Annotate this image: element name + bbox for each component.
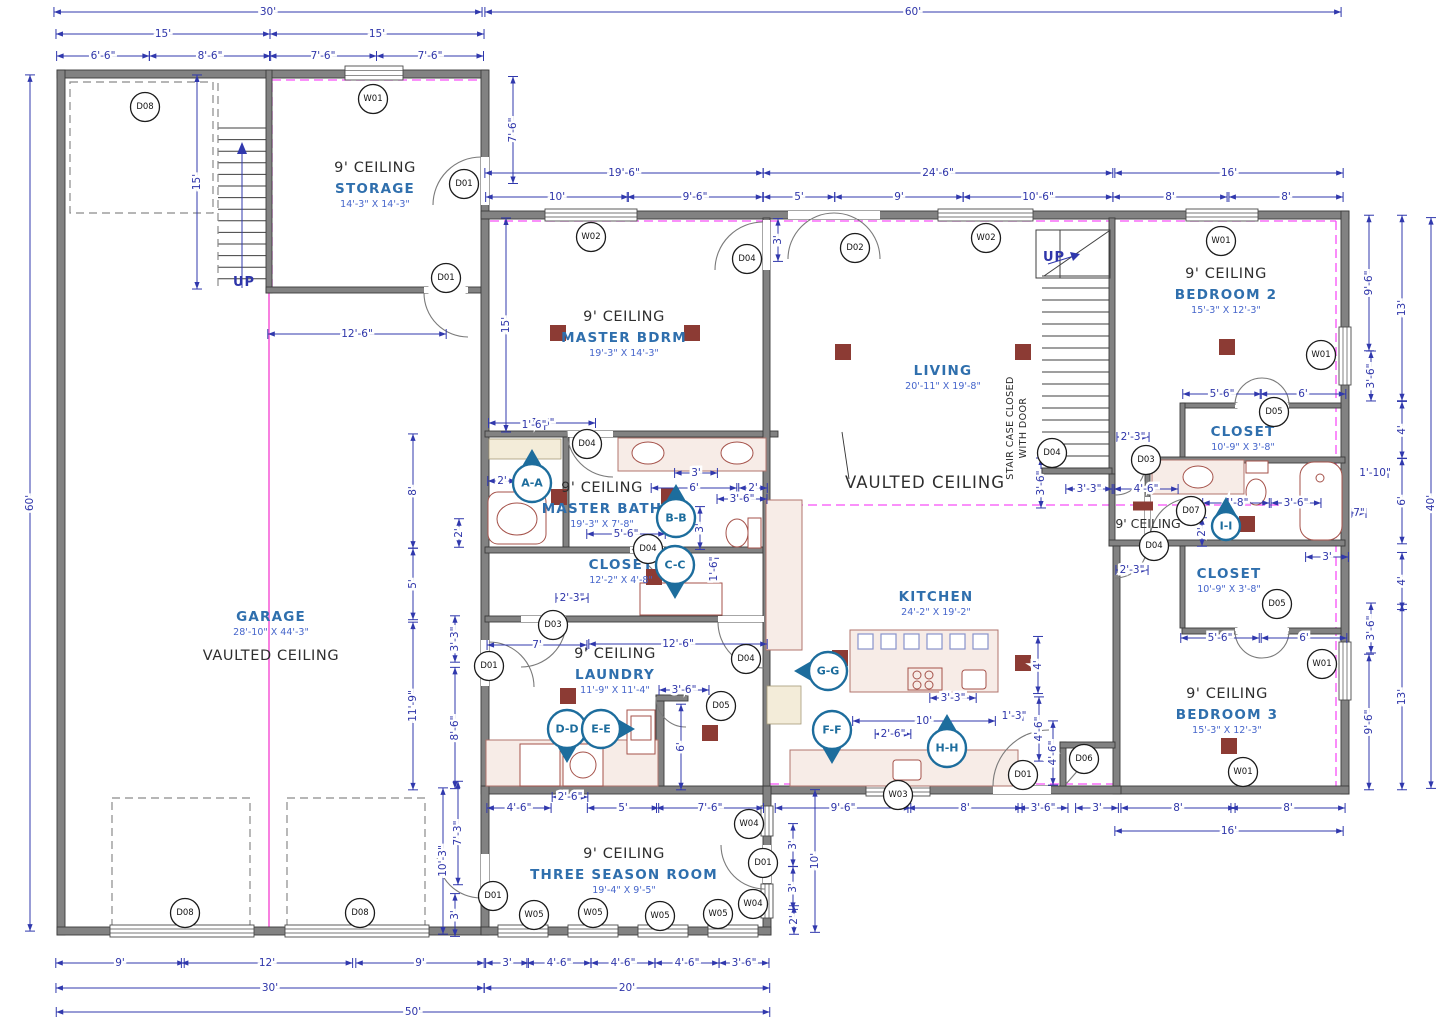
- door-tag-d01: D01: [450, 170, 479, 199]
- dimension: 40': [1425, 218, 1437, 789]
- plan-shape: [651, 485, 658, 490]
- plan-shape: [1186, 209, 1258, 221]
- plan-shape: [938, 209, 1033, 221]
- room-label-bedroom2-closet: CLOSET10'-9" X 3'-8": [1211, 424, 1276, 453]
- dimension-text: 15': [155, 28, 171, 40]
- window: [545, 209, 637, 221]
- door-opening: [718, 616, 764, 622]
- dimension-text: 19'-6": [608, 167, 640, 179]
- plan-shape: [149, 53, 156, 58]
- ceiling-fixture-square: [1015, 344, 1031, 360]
- dimension-text: 10': [549, 191, 565, 203]
- dimension: 50': [56, 1006, 770, 1018]
- ceiling-height-label: 9' CEILING: [1186, 686, 1268, 702]
- dimension-text: 10': [809, 853, 821, 869]
- plan-shape: [775, 219, 780, 226]
- plan-shape: [1366, 654, 1371, 661]
- plan-shape: [1428, 218, 1433, 225]
- wall: [1180, 546, 1185, 628]
- door-tag-d01: D01: [479, 882, 508, 911]
- window-tag-w02: W02: [972, 224, 1001, 253]
- marker-text: B-B: [665, 512, 686, 525]
- door-tag-d04: D04: [573, 430, 602, 459]
- ceiling-fixture-square: [835, 344, 851, 360]
- dimension-text: 4': [1396, 425, 1408, 435]
- dimension-text: 40': [1425, 495, 1437, 511]
- door-opening: [763, 220, 770, 270]
- plan-shape: [1115, 170, 1122, 175]
- plan-shape: [452, 616, 457, 623]
- plan-shape: [591, 960, 598, 965]
- dimension: 3': [1076, 802, 1119, 814]
- dimension: 5': [407, 548, 419, 619]
- wall: [1042, 468, 1112, 474]
- dimension-text: 13': [1396, 300, 1408, 316]
- plan-shape: [1338, 805, 1345, 810]
- dimension-text: 8': [1281, 191, 1291, 203]
- dimension: 4': [1032, 636, 1044, 693]
- fixture: [766, 500, 802, 650]
- marker-text: I-I: [1220, 520, 1233, 533]
- dimension-text: 9': [894, 191, 904, 203]
- dimension-text: 7'-3": [452, 821, 464, 846]
- dimension: 2': [453, 519, 465, 548]
- room-name: GARAGE: [236, 609, 306, 625]
- door-swing: [788, 213, 834, 259]
- dimension-text: 9': [415, 957, 425, 969]
- plan-shape: [263, 31, 270, 36]
- plan-shape: [1036, 697, 1041, 704]
- dimension: 24'-6": [763, 167, 1113, 179]
- dimension-text: 1'-6": [708, 557, 720, 582]
- wall: [1180, 403, 1185, 460]
- dimension: 15': [270, 28, 484, 40]
- fixture: [520, 744, 560, 786]
- door-tag-d01: D01: [1009, 761, 1038, 790]
- plan-shape: [739, 485, 746, 490]
- plan-shape: [270, 31, 277, 36]
- room-label-laundry: 9' CEILINGLAUNDRY11'-9" X 11'-4": [574, 646, 656, 696]
- dimension: 3'-6": [717, 493, 767, 505]
- fixture: [1246, 461, 1268, 473]
- dimension-text: 3': [787, 883, 799, 893]
- dimension: 8': [908, 802, 1022, 814]
- door-tag-d03: D03: [1132, 446, 1161, 475]
- dimension-text: 7'-6": [698, 802, 723, 814]
- room-size: 15'-3" X 12'-3": [1191, 305, 1261, 316]
- dimension: 6': [675, 704, 687, 790]
- plan-shape: [484, 985, 491, 990]
- dimension: 8'-6": [449, 667, 461, 788]
- plan-shape: [763, 194, 770, 199]
- dimension-text: 8': [407, 486, 419, 496]
- plan-shape: [1229, 194, 1236, 199]
- room-size: 10'-9" X 3'-8": [1197, 584, 1261, 595]
- leader-line: [842, 432, 849, 479]
- plan-shape: [1399, 604, 1404, 611]
- wall: [266, 70, 272, 293]
- dimension: 10': [486, 191, 629, 203]
- plan-shape: [956, 194, 963, 199]
- plan-shape: [1399, 394, 1404, 401]
- note-text: VAULTED CEILING: [203, 648, 339, 664]
- plan-shape: [790, 824, 795, 831]
- window-tag-w05: W05: [704, 900, 733, 929]
- dimension: 1'-3": [1002, 710, 1027, 722]
- door-tag-d05: D05: [1260, 398, 1289, 427]
- fixture: [632, 442, 664, 464]
- dimension-text: 3': [772, 235, 784, 245]
- room-label-master-bath: 9' CEILINGMASTER BATH19'-3" X 7'-8": [542, 480, 663, 530]
- dimension-text: 5'-6": [1210, 388, 1235, 400]
- plan-shape: [763, 985, 770, 990]
- dimension: 4': [1396, 401, 1408, 458]
- tag-text: D04: [1145, 541, 1162, 551]
- plan-shape: [237, 142, 247, 154]
- room-name: BEDROOM 2: [1175, 287, 1277, 303]
- dimension-text: 2'-3": [1120, 564, 1145, 576]
- plan-shape: [697, 507, 702, 514]
- door-tag-d01: D01: [432, 264, 461, 293]
- window-tag-w04: W04: [735, 810, 764, 839]
- dimension: 2'-3": [556, 592, 588, 604]
- plan-shape: [376, 53, 383, 58]
- tag-text: D02: [846, 243, 863, 253]
- dimension-text: 6'-6": [91, 50, 116, 62]
- room-label-bedroom3-closet: CLOSET10'-9" X 3'-8": [1197, 566, 1262, 595]
- room-label-kitchen: KITCHEN24'-2" X 19'-2": [899, 589, 974, 618]
- dimension-text: 12'-6": [662, 638, 694, 650]
- ceiling-fixture-square: [560, 688, 576, 704]
- dimension-text: 2'-3": [1121, 431, 1146, 443]
- dimension: 7'-3": [452, 781, 464, 884]
- plan-shape: [410, 541, 415, 548]
- door-tag-d04: D04: [1140, 532, 1169, 561]
- marker-text: H-H: [936, 742, 959, 755]
- tag-text: D01: [437, 273, 454, 283]
- dimension: 7": [1352, 507, 1366, 519]
- plan-shape: [475, 9, 482, 14]
- dimension-text: 2': [788, 915, 800, 925]
- dimension: 9'-6": [627, 191, 763, 203]
- dimension: 10'-6": [963, 191, 1113, 203]
- plan-shape: [1368, 603, 1373, 610]
- plan-shape: [56, 960, 63, 965]
- dimension-text: 12'-6": [341, 328, 373, 340]
- door-tag-d03: D03: [539, 611, 568, 640]
- room-name: LAUNDRY: [575, 667, 655, 683]
- plan-shape: [57, 53, 64, 58]
- window: [1339, 327, 1351, 385]
- fixture: [767, 686, 801, 724]
- section-marker-h-h: H-H: [928, 714, 966, 767]
- tag-text: D05: [1265, 407, 1282, 417]
- plan-shape: [1368, 351, 1373, 358]
- door-tag-d05: D05: [707, 692, 736, 721]
- wall: [1182, 403, 1237, 408]
- plan-shape: [477, 985, 484, 990]
- fixture: [927, 634, 942, 649]
- plan-shape: [717, 496, 724, 501]
- dimension-text: 2': [497, 475, 507, 487]
- plan-shape: [410, 613, 415, 620]
- plan-shape: [1336, 170, 1343, 175]
- dimension: 8': [1231, 802, 1345, 814]
- plan-shape: [1339, 327, 1351, 385]
- dimension-text: 3'-6": [1031, 802, 1056, 814]
- plan-shape: [908, 805, 915, 810]
- ceiling-fixture-square: [1133, 502, 1153, 511]
- door-opening: [481, 157, 489, 205]
- wall: [57, 70, 488, 78]
- floor-plan-svg: 30'60'15'15'6'-6"8'-6"7'-6"7'-6"19'-6"24…: [0, 0, 1445, 1021]
- plan-shape: [410, 548, 415, 555]
- dimension: 9'-6": [1363, 215, 1375, 351]
- dimension-text: 60': [24, 495, 36, 511]
- ceiling-fixture-square: [1239, 516, 1255, 532]
- plan-shape: [486, 960, 493, 965]
- plan-shape: [545, 209, 637, 221]
- plan-shape: [775, 805, 782, 810]
- dimension-text: 4': [1032, 660, 1044, 670]
- dimension-text: 3': [449, 910, 461, 920]
- dimension: 10': [809, 790, 821, 933]
- plan-shape: [1368, 646, 1373, 653]
- tag-text: D03: [1137, 455, 1154, 465]
- plan-shape: [1334, 9, 1341, 14]
- dimension-text: 24'-6": [922, 167, 954, 179]
- dimension-text: 8': [1173, 802, 1183, 814]
- ceiling-fixture-square: [1219, 339, 1235, 355]
- plan-shape: [1399, 452, 1404, 459]
- tag-text: D01: [480, 661, 497, 671]
- plan-shape: [1113, 194, 1120, 199]
- plan-shape: [1220, 194, 1227, 199]
- tag-text: W01: [1312, 659, 1331, 669]
- dimension: 8': [1113, 191, 1227, 203]
- door-tag-d01: D01: [749, 849, 778, 878]
- plan-shape: [510, 177, 515, 184]
- plan-shape: [452, 667, 457, 674]
- plan-shape: [587, 805, 594, 810]
- room-label-master-bdrm: 9' CEILINGMASTER BDRM19'-3" X 14'-3": [561, 309, 687, 359]
- plan-shape: [370, 53, 377, 58]
- dimension: 3'-3": [1066, 483, 1112, 495]
- plan-shape: [1368, 394, 1373, 401]
- tag-text: D04: [578, 439, 595, 449]
- tag-text: D05: [712, 701, 729, 711]
- plan-shape: [1399, 401, 1404, 408]
- marker-text: F-F: [822, 724, 841, 737]
- door-tag-d04: D04: [732, 645, 761, 674]
- fixture: [1183, 466, 1213, 488]
- plan-shape: [756, 170, 763, 175]
- dimension-text: 5': [794, 191, 804, 203]
- marker-text: D-D: [555, 723, 578, 736]
- dimension-text: 9'-6": [1363, 271, 1375, 296]
- plan-shape: [346, 960, 353, 965]
- plan-shape: [763, 170, 770, 175]
- wall: [57, 70, 65, 935]
- fixture: [721, 442, 753, 464]
- tag-text: D04: [738, 254, 755, 264]
- plan-shape: [345, 66, 403, 80]
- plan-shape: [762, 960, 769, 965]
- dimension-text: 6': [689, 482, 699, 494]
- dimension: 12': [181, 957, 352, 969]
- dimension-text: 10'-3": [437, 845, 449, 877]
- plan-shape: [194, 282, 199, 289]
- dimension: 4'-6": [487, 802, 551, 814]
- dimension-text: 15': [191, 174, 203, 190]
- plan-shape: [1106, 170, 1113, 175]
- wall: [1150, 540, 1345, 546]
- tag-text: D01: [754, 858, 771, 868]
- room-size: 19'-4" X 9'-5": [592, 885, 656, 896]
- plan-shape: [589, 420, 596, 425]
- window-tag-w01: W01: [1308, 650, 1337, 679]
- dimension-text: 3': [1322, 551, 1332, 563]
- tag-text: W04: [743, 899, 762, 909]
- dimension-text: 15': [500, 317, 512, 333]
- door-swing: [1262, 631, 1289, 658]
- dimension-text: 60': [905, 6, 921, 18]
- tag-text: D08: [176, 908, 193, 918]
- dimension: 2'-3": [1117, 431, 1149, 443]
- dimension: 4'-6": [1033, 697, 1045, 761]
- dimension: 4'-6": [655, 957, 719, 969]
- door-tag-d08: D08: [171, 899, 200, 928]
- tag-text: W04: [739, 819, 758, 829]
- ceiling-height-label: 9' CEILING: [1185, 266, 1267, 282]
- dimension: 3'-6": [1018, 802, 1068, 814]
- dimension-text: 3'-6": [1284, 497, 1309, 509]
- dimension: 20': [484, 982, 769, 994]
- dimension: 13': [1396, 604, 1408, 790]
- plan-shape: [1306, 554, 1313, 559]
- wall: [266, 287, 428, 293]
- plan-shape: [1428, 781, 1433, 788]
- room-size: 19'-3" X 7'-8": [570, 519, 634, 530]
- marker-text: E-E: [591, 723, 611, 736]
- dimension-text: 7'-6": [418, 50, 443, 62]
- plan-shape: [485, 9, 492, 14]
- dimension: 1'-10": [1359, 467, 1391, 479]
- plan-shape: [1076, 805, 1083, 810]
- fixture: [881, 634, 896, 649]
- dimension: 8'-6": [149, 50, 270, 62]
- dimension: 5': [587, 802, 658, 814]
- plan-shape: [410, 622, 415, 629]
- dimension-text: 30': [262, 982, 278, 994]
- room-size: 14'-3" X 14'-3": [340, 199, 410, 210]
- plan-shape: [1035, 687, 1040, 694]
- dimension-text: 4'-6": [1134, 483, 1159, 495]
- dimension: 8': [1121, 802, 1235, 814]
- marker-text: A-A: [521, 477, 543, 490]
- dimension-text: 4'-6": [611, 957, 636, 969]
- plan-shape: [1399, 552, 1404, 559]
- plan-shape: [1111, 805, 1118, 810]
- dimension: 19'-6": [485, 167, 763, 179]
- door-opening: [1235, 628, 1289, 634]
- dimension: 11'-9": [407, 622, 419, 790]
- tag-text: D03: [544, 620, 561, 630]
- dimension-text: 4': [1396, 576, 1408, 586]
- wall: [481, 786, 771, 794]
- plan-shape: [790, 867, 795, 874]
- dimension: 6'-6": [57, 50, 150, 62]
- dimension-text: 7": [1353, 507, 1365, 519]
- dimension: 5': [763, 191, 834, 203]
- plan-shape: [655, 960, 662, 965]
- dimension-text: 4'-6": [547, 957, 572, 969]
- dimension-text: 3': [694, 523, 706, 533]
- dimension: 9': [835, 191, 963, 203]
- plan-shape: [1231, 805, 1238, 810]
- dimension: 15': [191, 75, 203, 289]
- fixture: [748, 518, 761, 548]
- plan-shape: [988, 718, 995, 723]
- dimension-text: 2'-6": [881, 728, 906, 740]
- plan-shape: [1399, 458, 1404, 465]
- plan-shape: [812, 925, 817, 932]
- plan-shape: [678, 704, 683, 711]
- dimension-text: 4'-6": [1047, 741, 1059, 766]
- dimension: 3': [694, 507, 706, 550]
- section-marker-g-g: G-G: [794, 652, 847, 690]
- dimension-text: 15': [369, 28, 385, 40]
- dimension-text: 3'-6": [1365, 616, 1377, 641]
- window-tag-w01: W01: [1229, 758, 1258, 787]
- door-tag-d04: D04: [1038, 439, 1067, 468]
- dimension: 3'-3": [930, 692, 976, 704]
- plan-shape: [1036, 754, 1041, 761]
- room-label-living: LIVING20'-11" X 19'-8": [905, 363, 981, 392]
- door-tag-d08: D08: [346, 899, 375, 928]
- room-size: 20'-11" X 19'-8": [905, 381, 981, 392]
- dimension: 4'-6": [591, 957, 655, 969]
- dimension-text: 1'-3": [1002, 710, 1027, 722]
- ceiling-height-label: 9' CEILING: [583, 309, 665, 325]
- dimension-text: 3'-3": [1077, 483, 1102, 495]
- window-tag-w03: W03: [884, 781, 913, 810]
- dimension-text: 3'-6": [732, 957, 757, 969]
- dimension-text: 4'-6": [507, 802, 532, 814]
- fixture: [962, 670, 986, 689]
- note-text: STAIR CASE CLOSED: [1005, 376, 1016, 479]
- room-label-storage: 9' CEILINGSTORAGE14'-3" X 14'-3": [334, 160, 416, 210]
- plan-shape: [477, 31, 484, 36]
- fixture: [973, 634, 988, 649]
- tag-text: D04: [1043, 448, 1060, 458]
- layer-mark: A-AB-BC-CD-DE-EF-FG-GH-HI-I: [513, 449, 1240, 767]
- plan-shape: [1262, 500, 1269, 505]
- tag-text: W05: [650, 911, 669, 921]
- plan-shape: [27, 924, 32, 931]
- ceiling-fixture-square: [702, 725, 718, 741]
- door-tag-d06: D06: [1070, 745, 1099, 774]
- plan-shape: [930, 695, 937, 700]
- ceiling-height-label: 9' CEILING: [583, 846, 665, 862]
- dimension-text: 16': [1221, 167, 1237, 179]
- plan-shape: [584, 960, 591, 965]
- tag-text: W03: [888, 790, 907, 800]
- dimension-text: 4'-6": [675, 957, 700, 969]
- room-name: STORAGE: [335, 181, 415, 197]
- tag-text: W01: [1233, 767, 1252, 777]
- plan-shape: [648, 960, 655, 965]
